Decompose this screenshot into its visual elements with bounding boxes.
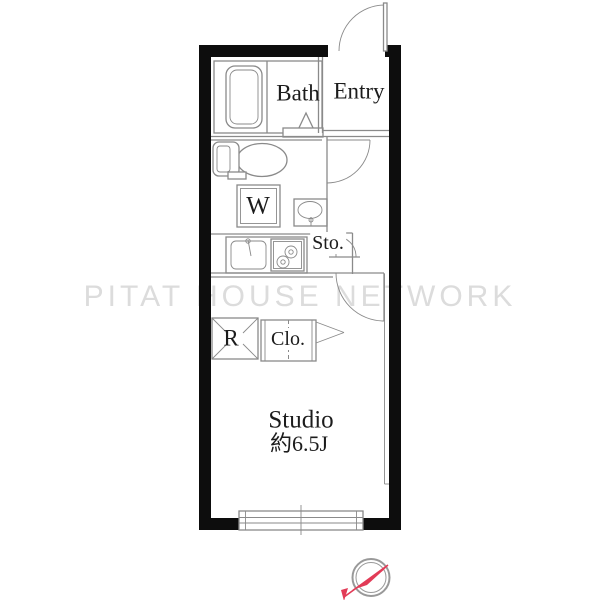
studio-door-arc <box>336 273 384 321</box>
closet-arrow-upper <box>316 322 344 333</box>
stove-burner-1-center <box>289 250 293 254</box>
outer-walls <box>199 45 401 530</box>
refrigerator-corner-br <box>243 344 258 359</box>
bathtub-inner <box>230 70 258 124</box>
stove-burner-1 <box>285 246 297 258</box>
label-refrigerator: R <box>223 327 238 350</box>
stove-burner-2 <box>277 256 289 268</box>
entry-door <box>339 3 387 51</box>
label-entry: Entry <box>333 80 384 103</box>
entry-door-leaf <box>384 3 388 51</box>
washbasin-bowl <box>298 202 322 219</box>
label-washer: W <box>246 194 270 219</box>
toilet <box>213 142 287 179</box>
label-closet: Clo. <box>269 328 307 350</box>
bathtub-outer <box>226 66 262 128</box>
floorplan-canvas: PITAT HOUSE NETWORK <box>0 0 600 600</box>
label-storage: Sto. <box>310 232 346 254</box>
refrigerator-corner-tr <box>243 318 258 333</box>
wall-left <box>199 45 211 530</box>
toilet-seat-hinge <box>228 172 246 179</box>
compass <box>341 559 390 600</box>
label-bath: Bath <box>276 82 319 105</box>
kitchen-counter <box>226 237 307 273</box>
label-studio-name: Studio <box>268 408 333 433</box>
kitchen-sink <box>231 241 266 269</box>
wall-top-left <box>199 45 328 57</box>
entry-door-arc <box>339 5 385 51</box>
closet-arrow-lower <box>316 333 344 344</box>
sliding-window <box>239 505 363 535</box>
studio-door <box>336 273 384 321</box>
wall-right <box>389 45 401 530</box>
label-studio-size: 約6.5J <box>270 433 328 455</box>
hall-door <box>327 140 370 183</box>
hall-door-arc <box>327 140 370 183</box>
bath-threshold <box>283 128 323 137</box>
washbasin <box>294 199 327 226</box>
stove-burner-2-center <box>281 260 285 264</box>
